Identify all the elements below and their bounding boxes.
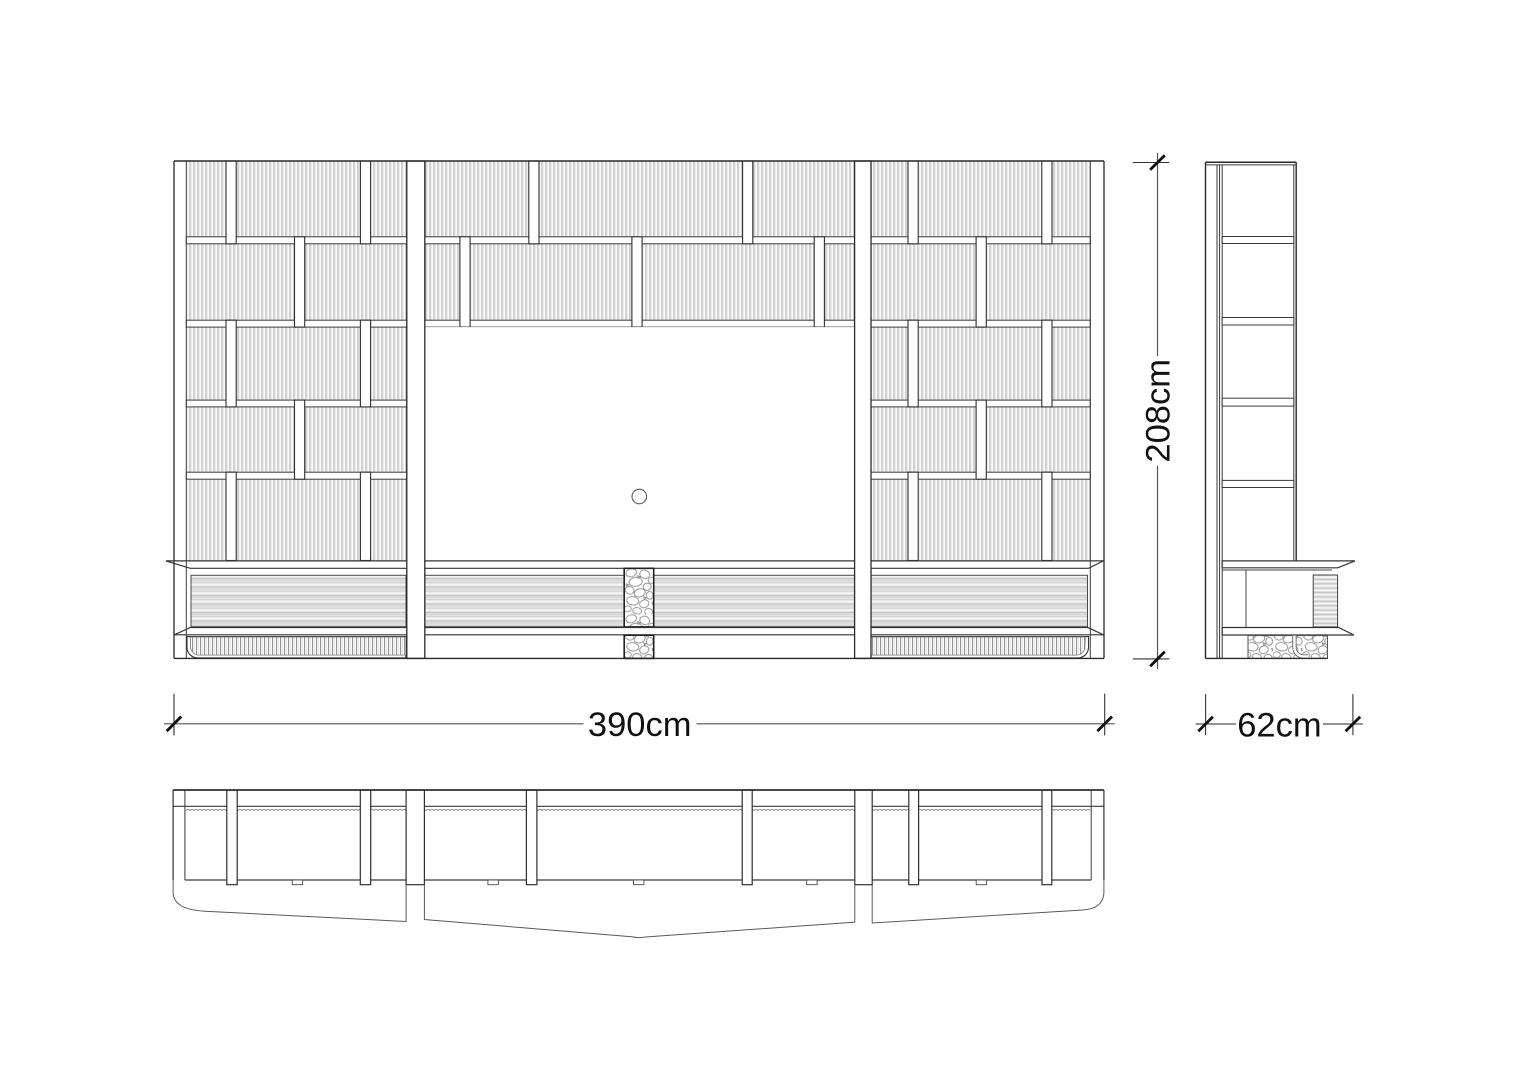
svg-text:208cm: 208cm [1140, 359, 1178, 463]
svg-text:390cm: 390cm [588, 706, 692, 744]
svg-text:62cm: 62cm [1237, 706, 1321, 744]
